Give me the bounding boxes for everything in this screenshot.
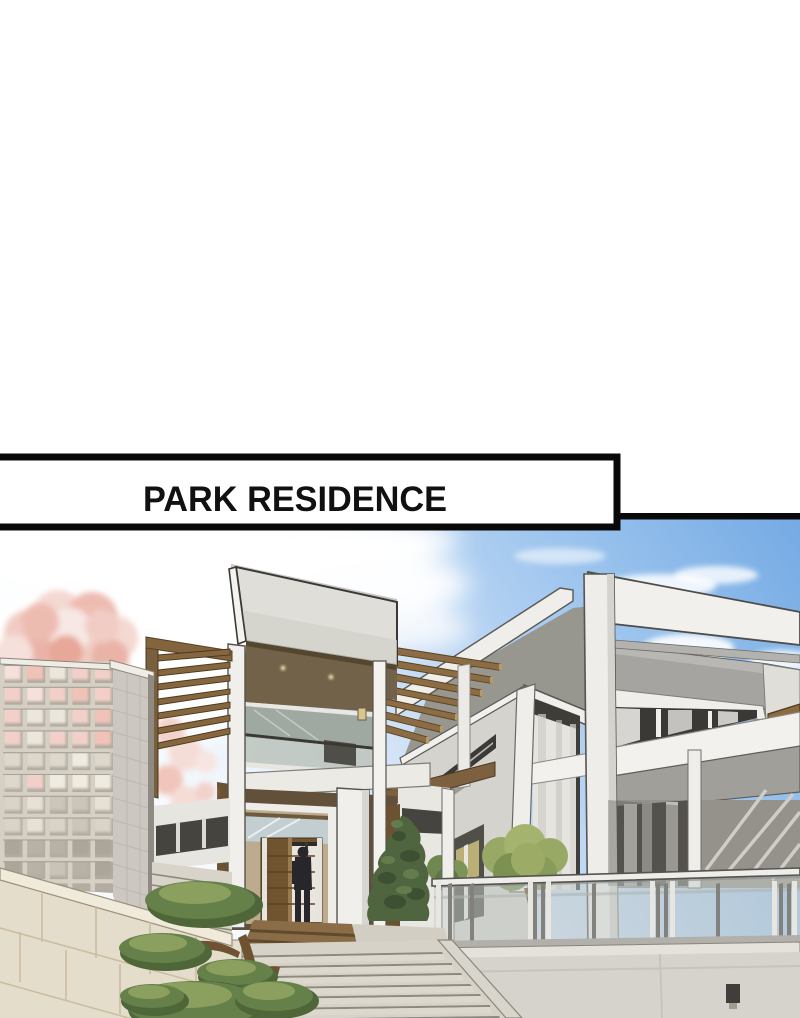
svg-text:PARK RESIDENCE: PARK RESIDENCE [143, 480, 447, 519]
